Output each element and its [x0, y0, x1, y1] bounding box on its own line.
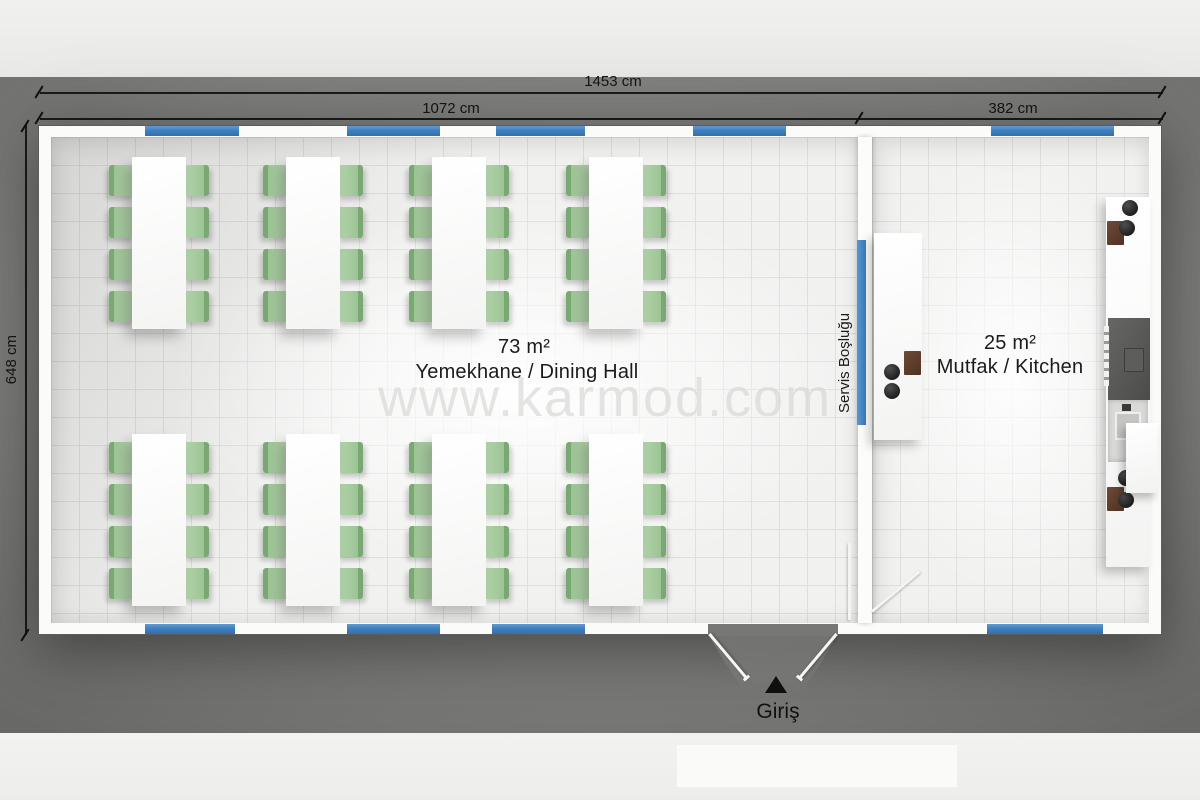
- dining-name-label: Yemekhane / Dining Hall: [377, 361, 677, 384]
- chair: [640, 291, 666, 322]
- dining-area-label: 73 m²: [424, 336, 624, 359]
- entrance-arrow-icon: [765, 676, 787, 693]
- chair: [483, 249, 509, 280]
- prep-table: [1126, 423, 1158, 493]
- service-opening-label: Servis Boşluğu: [836, 301, 853, 425]
- chair: [337, 526, 363, 557]
- chair: [640, 249, 666, 280]
- chair: [337, 165, 363, 196]
- dining-table: [286, 157, 340, 329]
- window: [693, 126, 786, 136]
- dining-table: [432, 157, 486, 329]
- window: [492, 624, 585, 634]
- chair: [640, 207, 666, 238]
- chair: [640, 526, 666, 557]
- chair: [483, 526, 509, 557]
- chair: [183, 249, 209, 280]
- floor-plan-image: 1453 cm 1072 cm 382 cm 648 cm Giriş www.…: [0, 0, 1200, 800]
- chair: [337, 442, 363, 473]
- chair: [337, 207, 363, 238]
- dining-table: [286, 434, 340, 606]
- entrance-label: Giriş: [738, 700, 818, 724]
- service-opening-window: [857, 240, 866, 425]
- chair: [483, 207, 509, 238]
- chair: [183, 291, 209, 322]
- chair: [483, 568, 509, 599]
- chair: [337, 291, 363, 322]
- background-bottom-strip: [0, 733, 1200, 800]
- kitchen-door-leaf-dining-side: [848, 543, 851, 620]
- chair: [640, 165, 666, 196]
- dining-table: [132, 157, 186, 329]
- dining-table: [589, 434, 643, 606]
- window: [987, 624, 1103, 634]
- dimension-line-split: [40, 118, 1163, 120]
- window: [347, 624, 440, 634]
- kitchen-area-label: 25 m²: [910, 332, 1110, 355]
- chair: [183, 484, 209, 515]
- window: [347, 126, 440, 136]
- dimension-line-total: [40, 92, 1163, 94]
- chair: [483, 165, 509, 196]
- dimension-label-depth: 648 cm: [3, 335, 20, 384]
- cooktop-burner: [1119, 220, 1135, 236]
- dining-table: [132, 434, 186, 606]
- dimension-label-dining: 1072 cm: [376, 100, 526, 117]
- cooktop-burner: [1118, 492, 1134, 508]
- chair: [483, 484, 509, 515]
- chair: [337, 484, 363, 515]
- chair: [640, 442, 666, 473]
- window: [145, 126, 239, 136]
- chair: [640, 484, 666, 515]
- dining-table: [432, 434, 486, 606]
- chair: [337, 568, 363, 599]
- chair: [183, 442, 209, 473]
- window: [496, 126, 585, 136]
- chair: [183, 165, 209, 196]
- window: [145, 624, 235, 634]
- chair: [640, 568, 666, 599]
- photo-edge-box: [677, 745, 957, 787]
- background-top-strip: [0, 0, 1200, 77]
- window: [991, 126, 1114, 136]
- dining-table: [589, 157, 643, 329]
- cooktop-burner: [884, 383, 900, 399]
- chair: [183, 526, 209, 557]
- entrance-opening: [708, 624, 838, 636]
- chair: [337, 249, 363, 280]
- chair: [183, 207, 209, 238]
- dimension-label-kitchen: 382 cm: [938, 100, 1088, 117]
- dimension-label-total: 1453 cm: [538, 73, 688, 90]
- chair: [483, 291, 509, 322]
- chair: [483, 442, 509, 473]
- dimension-line-depth: [25, 125, 27, 635]
- cooktop-burner: [1122, 200, 1138, 216]
- kitchen-name-label: Mutfak / Kitchen: [885, 356, 1135, 379]
- chair: [183, 568, 209, 599]
